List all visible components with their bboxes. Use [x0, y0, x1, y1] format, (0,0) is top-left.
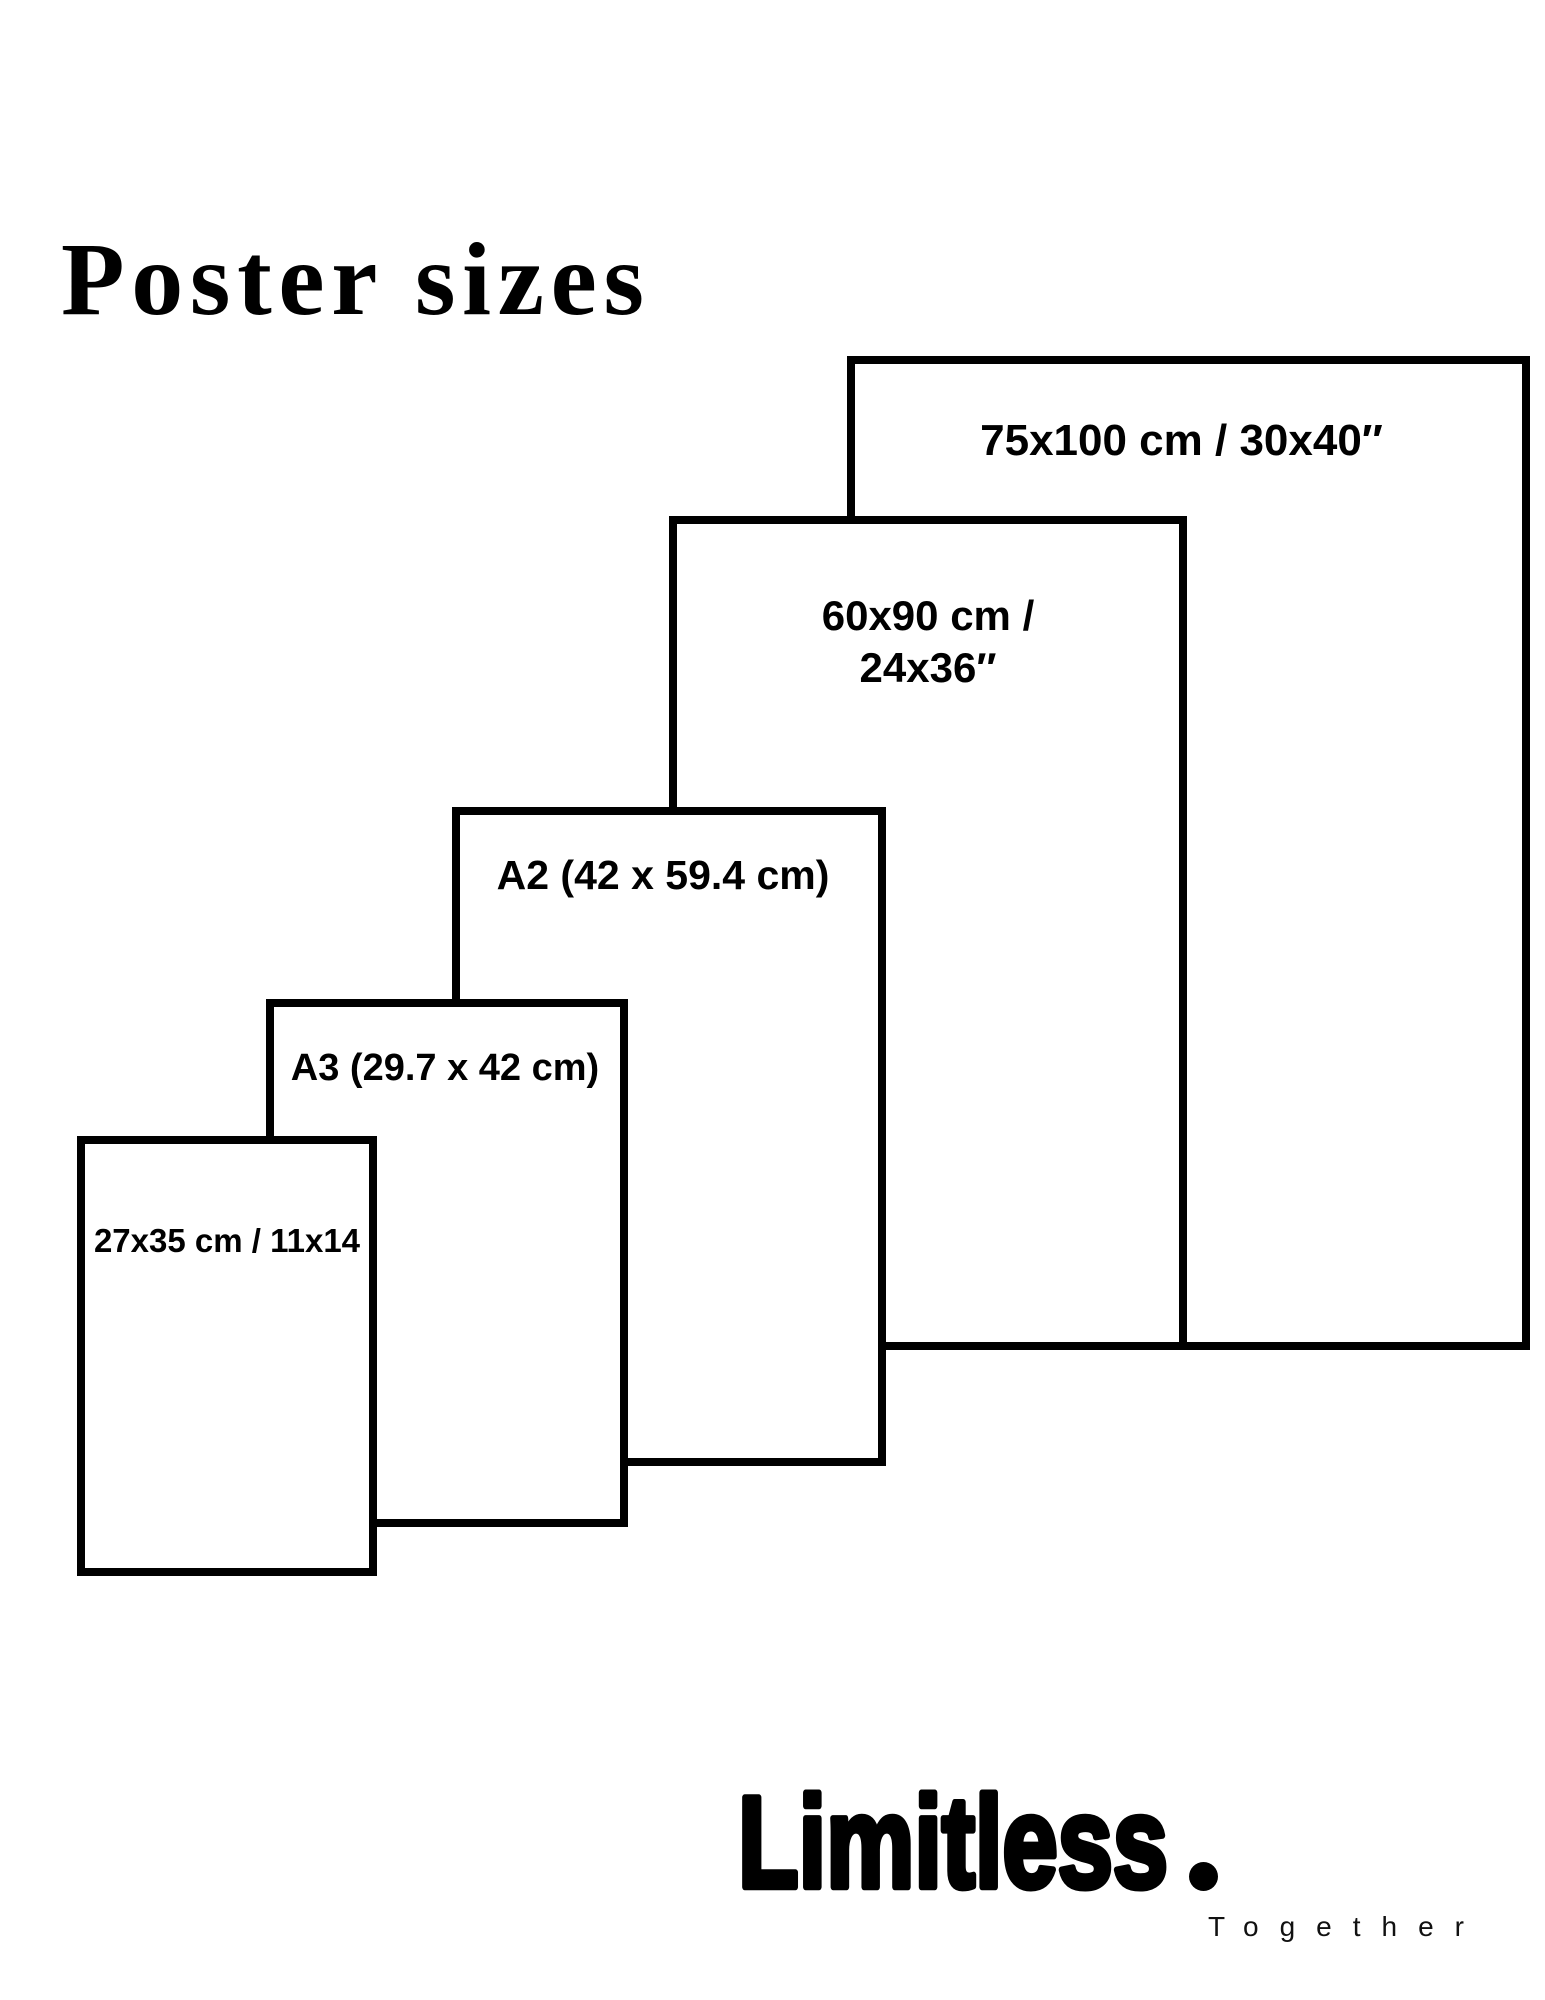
svg-text:Limitless: Limitless	[738, 1769, 1168, 1915]
